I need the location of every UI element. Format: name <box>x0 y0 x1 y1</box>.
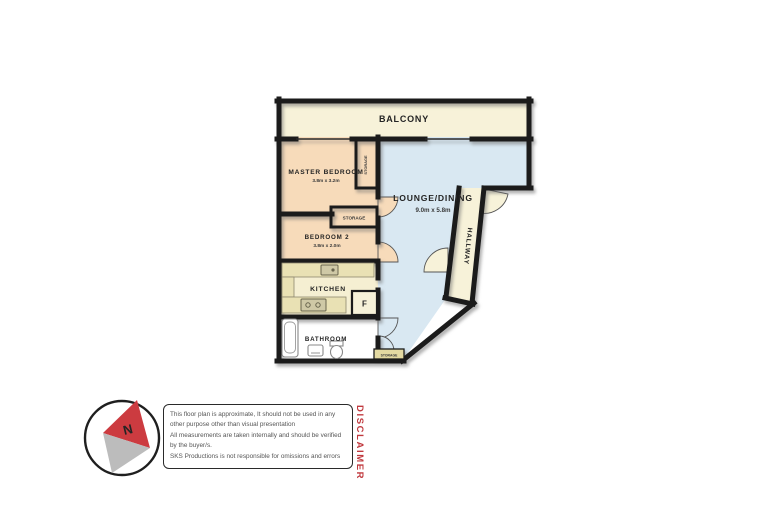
bedroom2-label: BEDROOM 2 <box>305 234 350 241</box>
sink-drain-icon <box>331 268 334 271</box>
disclaimer-line: by the buyer/s. <box>170 441 346 451</box>
storage-middle-label: STORAGE <box>343 216 366 221</box>
balcony-label: BALCONY <box>379 114 429 124</box>
disclaimer-line: other purpose other than visual presenta… <box>170 420 346 430</box>
storage-lower-label: STORAGE <box>381 354 398 358</box>
compass: N <box>85 400 159 475</box>
kitchen-label: KITCHEN <box>310 286 346 293</box>
disclaimer-line: All measurements are taken internally an… <box>170 431 346 441</box>
lounge-dining-dims: 9.0m x 5.8m <box>415 207 451 214</box>
lounge-dining-label: LOUNGE/DINING <box>393 193 473 203</box>
disclaimer-line: This floor plan is approximate, It shoul… <box>170 410 346 420</box>
disclaimer-box: This floor plan is approximate, It shoul… <box>163 404 353 469</box>
bedroom2-dims: 3.8m x 2.0m <box>313 243 340 249</box>
floorplan-page: BALCONY MASTER BEDROOM 3.8m x 3.2m STORA… <box>0 0 768 512</box>
bathroom-label: BATHROOM <box>305 336 347 343</box>
kitchen-counter-left <box>282 277 294 297</box>
master-bedroom-dims: 3.8m x 3.2m <box>312 178 339 184</box>
master-bedroom-label: MASTER BEDROOM <box>288 169 363 176</box>
disclaimer-line: SKS Productions is not responsible for o… <box>170 452 346 462</box>
sink-icon <box>321 265 338 275</box>
floorplan-svg: BALCONY MASTER BEDROOM 3.8m x 3.2m STORA… <box>0 0 768 512</box>
basin-icon <box>308 345 323 356</box>
storage-upper-label: STORAGE <box>363 155 368 175</box>
disclaimer-title: DISCLAIMER <box>354 405 365 469</box>
fridge-label: F <box>362 300 367 309</box>
cooktop-icon <box>301 299 326 311</box>
toilet-bowl-icon <box>331 346 343 359</box>
